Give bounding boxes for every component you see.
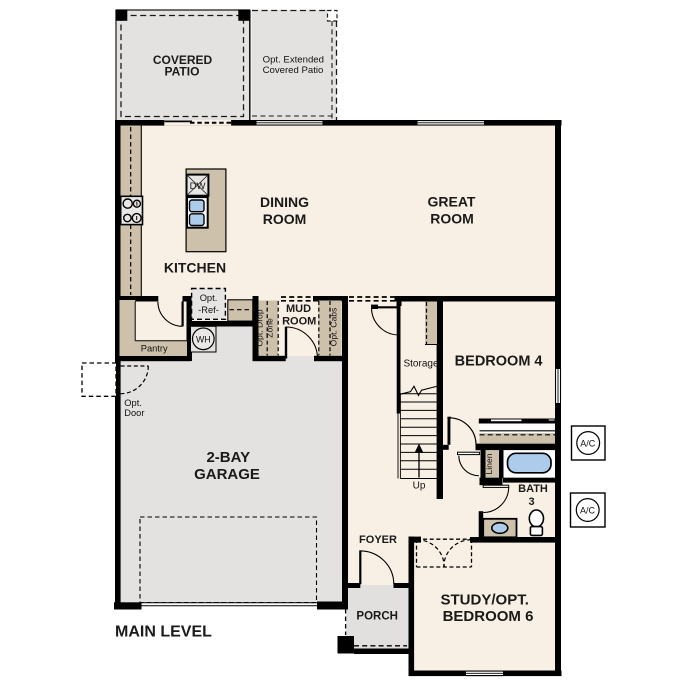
svg-text:FOYER: FOYER [359,534,397,546]
svg-text:2-BAY: 2-BAY [206,449,250,466]
svg-text:MAIN LEVEL: MAIN LEVEL [115,623,212,640]
svg-text:Linen: Linen [484,453,494,474]
svg-text:ROOM: ROOM [263,211,307,227]
svg-text:BATH: BATH [518,483,548,495]
svg-text:-Ref-: -Ref- [198,305,219,315]
svg-text:Door: Door [124,408,144,418]
svg-text:DINING: DINING [260,194,309,210]
svg-text:Up: Up [413,481,426,492]
svg-text:BEDROOM 4: BEDROOM 4 [455,353,543,369]
svg-text:Storage: Storage [403,359,438,370]
svg-text:Opt. Drop: Opt. Drop [255,309,265,346]
svg-text:KITCHEN: KITCHEN [164,260,226,276]
svg-text:GREAT: GREAT [428,193,476,209]
svg-text:BEDROOM 6: BEDROOM 6 [443,608,534,625]
svg-text:Pantry: Pantry [141,344,168,354]
svg-text:ROOM: ROOM [282,315,316,327]
svg-text:3: 3 [528,496,534,508]
svg-text:PATIO: PATIO [165,64,200,78]
svg-text:Opt. Extended: Opt. Extended [263,55,324,66]
svg-text:Opt. Cabs: Opt. Cabs [329,308,339,347]
svg-text:Zone: Zone [265,318,275,338]
svg-text:DW: DW [190,181,206,192]
svg-text:MUD: MUD [286,303,311,315]
svg-text:WH: WH [196,334,211,344]
svg-text:Covered Patio: Covered Patio [263,65,324,76]
svg-text:Opt.: Opt. [200,293,218,303]
svg-text:A/C: A/C [580,439,596,449]
svg-text:STUDY/OPT.: STUDY/OPT. [441,592,529,609]
svg-text:Opt.: Opt. [124,398,142,408]
svg-text:ROOM: ROOM [430,210,474,226]
svg-text:PORCH: PORCH [356,611,398,623]
svg-text:A/C: A/C [580,506,596,516]
svg-text:GARAGE: GARAGE [194,466,260,483]
